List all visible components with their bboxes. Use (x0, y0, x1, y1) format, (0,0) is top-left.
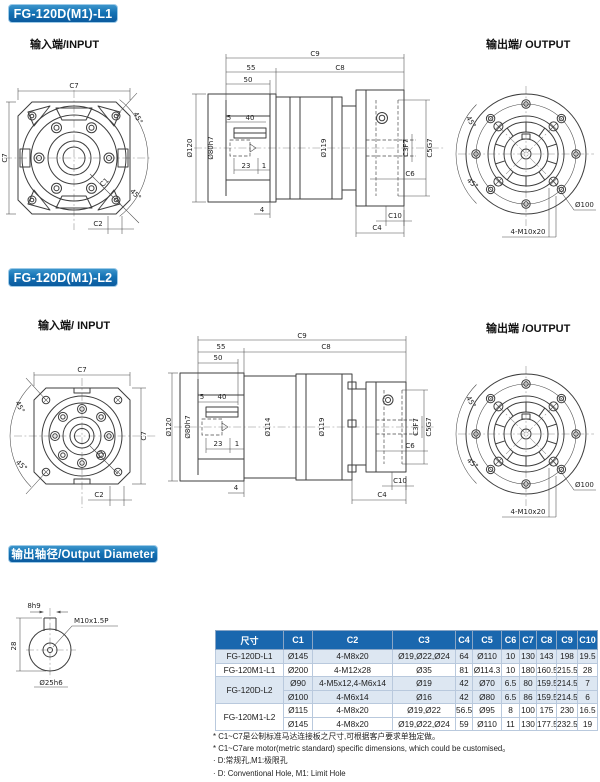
dim-label-key: 8h9 (27, 602, 40, 610)
footnote-line: * C1~C7是公制标准马达连接板之尺寸,可根据客户要求单独定做。 (213, 731, 599, 743)
spec-cell: 19.5 (578, 650, 598, 664)
dim-label-dia119: Ø119 (320, 139, 328, 158)
dim-label-c10: C10 (388, 212, 402, 220)
spec-cell: 59 (456, 717, 473, 731)
dim-label-c2: C2 (94, 491, 103, 499)
footnote-line: · D:常规孔,M1:极限孔 (213, 755, 599, 767)
spec-cell: 6.5 (502, 690, 520, 704)
section-header-l2: FG-120D(M1)-L2 (8, 268, 118, 287)
spec-cell: 160.5 (537, 663, 557, 677)
spec-cell: 130 (520, 650, 537, 664)
dim-label-shaft-dia: Ø25h6 (39, 679, 63, 687)
spec-cell: 215.5 (557, 663, 578, 677)
dim-label-dia80: Ø80h7 (184, 415, 192, 438)
dim-label-c7-top: C7 (77, 366, 86, 374)
spec-cell: 16.5 (578, 704, 598, 718)
footnotes: * C1~C7是公制标准马达连接板之尺寸,可根据客户要求单独定做。* C1~C7… (213, 731, 599, 780)
spec-cell: Ø19,Ø22 (393, 704, 456, 718)
model-cell: FG-120M1-L2 (216, 704, 284, 731)
spec-cell: 177.5 (537, 717, 557, 731)
spec-cell: 159.5 (537, 690, 557, 704)
spec-cell: Ø95 (473, 704, 502, 718)
spec-cell: 159.5 (537, 677, 557, 691)
spec-cell: 6.5 (502, 677, 520, 691)
spec-cell: 4-M12x28 (313, 663, 393, 677)
dim-label-c6: C6 (405, 442, 415, 450)
section-header-shaft-text: 输出轴径/Output Diameter (11, 546, 154, 562)
spec-cell: 214.5 (557, 690, 578, 704)
dim-label-28: 28 (10, 642, 18, 651)
output-shaft-drawing: 8h9 28 M10x1.5P Ø25h6 (6, 594, 126, 694)
l2-output-drawing: 45° 45° Ø100 4-M10x20 (448, 344, 598, 522)
spec-cell: 7 (578, 677, 598, 691)
dim-label-5: 5 (227, 114, 231, 122)
section-header-shaft: 输出轴径/Output Diameter (8, 545, 158, 563)
spec-cell: Ø80 (473, 690, 502, 704)
spec-col-header: C5 (473, 631, 502, 650)
spec-col-header: C8 (537, 631, 557, 650)
spec-cell: 56.5 (456, 704, 473, 718)
l1-input-drawing: C7 C7 45° 45° C1 C2 (2, 62, 152, 240)
footnote-line: · D: Conventional Hole, M1: Limit Hole (213, 768, 599, 780)
section-header-l1: FG-120D(M1)-L1 (8, 4, 118, 23)
spec-cell: 10 (502, 663, 520, 677)
spec-cell: 8 (502, 704, 520, 718)
dim-label-c9: C9 (310, 50, 319, 58)
dim-label-c9: C9 (297, 332, 306, 340)
spec-cell: 4-M8x20 (313, 650, 393, 664)
dim-label-c8: C8 (321, 343, 330, 351)
spec-cell: 198 (557, 650, 578, 664)
spec-cell: Ø110 (473, 650, 502, 664)
section-header-l2-text: FG-120D(M1)-L2 (14, 271, 113, 285)
model-cell: FG-120M1-L1 (216, 663, 284, 677)
dim-label-dia119: Ø119 (318, 418, 326, 437)
spec-row: FG-120D-L1Ø1454-M8x20Ø19,Ø22,Ø2464Ø11010… (216, 650, 598, 664)
dim-label-45-bottom: 45° (14, 458, 29, 472)
dim-label-c1: C1 (98, 176, 110, 188)
spec-cell: 42 (456, 690, 473, 704)
dim-label-c5: C5G7 (426, 138, 434, 157)
dim-label-c3: C3F7 (402, 139, 410, 157)
spec-cell: 4-M6x14 (313, 690, 393, 704)
catalog-page: FG-120D(M1)-L1 输入端/INPUT 输出端/ OUTPUT (0, 0, 600, 782)
spec-cell: 175 (537, 704, 557, 718)
l2-output-label: 输出端 /OUTPUT (486, 320, 570, 336)
l1-input-label: 输入端/INPUT (30, 36, 99, 52)
dim-label-45-top: 45° (131, 111, 144, 126)
dim-label-c7-top: C7 (69, 82, 78, 90)
dim-label-50: 50 (214, 354, 223, 362)
dim-label-1: 1 (262, 162, 266, 170)
dim-label-dia120: Ø120 (166, 418, 173, 437)
l2-input-drawing: C7 C7 45° 45° C1 C2 (0, 348, 165, 523)
dim-label-c5: C5G7 (425, 417, 433, 436)
spec-cell: 4-M8x20 (313, 717, 393, 731)
spec-cell: 19 (578, 717, 598, 731)
dim-label-45-top: 45° (464, 115, 477, 130)
dim-label-c7-left: C7 (2, 153, 9, 162)
spec-cell: 28 (578, 663, 598, 677)
spec-cell: Ø90 (284, 677, 313, 691)
spec-cell: 11 (502, 717, 520, 731)
dim-label-1: 1 (235, 440, 239, 448)
spec-cell: 143 (537, 650, 557, 664)
dim-label-23: 23 (214, 440, 223, 448)
dim-label-dia100: Ø100 (575, 481, 594, 489)
dim-label-c2: C2 (93, 220, 102, 228)
dim-label-c4: C4 (377, 491, 387, 499)
l1-section-drawing: C9 55 C8 50 Ø120 Ø80h7 Ø119 5 40 23 1 4 … (180, 48, 448, 253)
spec-cell: Ø35 (393, 663, 456, 677)
spec-cell: 232.5 (557, 717, 578, 731)
dim-label-c6: C6 (405, 170, 415, 178)
dim-label-dia120: Ø120 (186, 139, 194, 158)
spec-cell: Ø200 (284, 663, 313, 677)
spec-cell: 100 (520, 704, 537, 718)
spec-cell: 180 (520, 663, 537, 677)
dim-label-55: 55 (247, 64, 256, 72)
spec-header-row: 尺寸C1C2C3C4C5C6C7C8C9C10 (216, 631, 598, 650)
dim-label-c1: C1 (94, 448, 106, 460)
dim-label-dia114: Ø114 (264, 417, 272, 436)
spec-cell: Ø114.3 (473, 663, 502, 677)
dim-label-thread: M10x1.5P (74, 617, 108, 625)
spec-cell: Ø19 (393, 677, 456, 691)
dim-label-c7-right: C7 (140, 431, 148, 440)
spec-table: 尺寸C1C2C3C4C5C6C7C8C9C10 FG-120D-L1Ø1454-… (215, 630, 598, 731)
spec-cell: Ø70 (473, 677, 502, 691)
l2-input-label: 输入端/ INPUT (38, 317, 110, 333)
spec-cell: 6 (578, 690, 598, 704)
spec-col-header: C9 (557, 631, 578, 650)
spec-col-header: 尺寸 (216, 631, 284, 650)
dim-label-40: 40 (218, 393, 227, 401)
dim-label-dia100: Ø100 (575, 201, 594, 209)
spec-cell: 64 (456, 650, 473, 664)
spec-cell: Ø145 (284, 717, 313, 731)
spec-cell: 130 (520, 717, 537, 731)
model-cell: FG-120D-L1 (216, 650, 284, 664)
spec-cell: 214.5 (557, 677, 578, 691)
spec-col-header: C2 (313, 631, 393, 650)
spec-cell: Ø110 (473, 717, 502, 731)
dim-label-c4: C4 (372, 224, 382, 232)
dim-label-bolt: 4-M10x20 (511, 228, 546, 236)
l1-output-label: 输出端/ OUTPUT (486, 36, 570, 52)
spec-col-header: C3 (393, 631, 456, 650)
dim-label-55: 55 (217, 343, 226, 351)
dim-label-23: 23 (242, 162, 251, 170)
spec-cell: 230 (557, 704, 578, 718)
spec-row: FG-120M1-L2Ø1154-M8x20Ø19,Ø2256.5Ø958100… (216, 704, 598, 718)
spec-cell: 86 (520, 690, 537, 704)
spec-col-header: C10 (578, 631, 598, 650)
dim-label-4: 4 (234, 484, 239, 492)
dim-label-c10: C10 (393, 477, 407, 485)
spec-col-header: C4 (456, 631, 473, 650)
spec-cell: 42 (456, 677, 473, 691)
spec-col-header: C1 (284, 631, 313, 650)
model-cell: FG-120D-L2 (216, 677, 284, 704)
spec-cell: 81 (456, 663, 473, 677)
spec-cell: Ø16 (393, 690, 456, 704)
spec-cell: Ø115 (284, 704, 313, 718)
dim-label-c8: C8 (335, 64, 344, 72)
footnote-line: * C1~C7are motor(metric standard) specif… (213, 743, 599, 755)
spec-cell: 4-M5x12,4-M6x14 (313, 677, 393, 691)
dim-label-45-top: 45° (464, 395, 477, 410)
dim-label-c3: C3F7 (412, 418, 420, 436)
dim-label-4: 4 (260, 206, 265, 214)
section-header-l1-text: FG-120D(M1)-L1 (14, 7, 113, 21)
spec-cell: Ø145 (284, 650, 313, 664)
spec-cell: Ø19,Ø22,Ø24 (393, 650, 456, 664)
spec-row: FG-120M1-L1Ø2004-M12x28Ø3581Ø114.3101801… (216, 663, 598, 677)
spec-row: FG-120D-L2Ø904-M5x12,4-M6x14Ø1942Ø706.58… (216, 677, 598, 691)
l2-section-drawing: C9 55 C8 50 Ø120 Ø80h7 Ø114 Ø119 5 40 23… (166, 332, 456, 532)
l1-output-drawing: 45° 45° Ø100 4-M10x20 (448, 64, 598, 242)
spec-cell: Ø100 (284, 690, 313, 704)
dim-label-bolt: 4-M10x20 (511, 508, 546, 516)
spec-col-header: C7 (520, 631, 537, 650)
spec-cell: Ø19,Ø22,Ø24 (393, 717, 456, 731)
dim-label-dia80: Ø80h7 (207, 136, 215, 159)
spec-col-header: C6 (502, 631, 520, 650)
dim-label-40: 40 (246, 114, 255, 122)
spec-cell: 80 (520, 677, 537, 691)
dim-label-50: 50 (244, 76, 253, 84)
dim-label-5: 5 (200, 393, 204, 401)
spec-cell: 4-M8x20 (313, 704, 393, 718)
dim-label-45-top: 45° (13, 400, 26, 415)
spec-cell: 10 (502, 650, 520, 664)
